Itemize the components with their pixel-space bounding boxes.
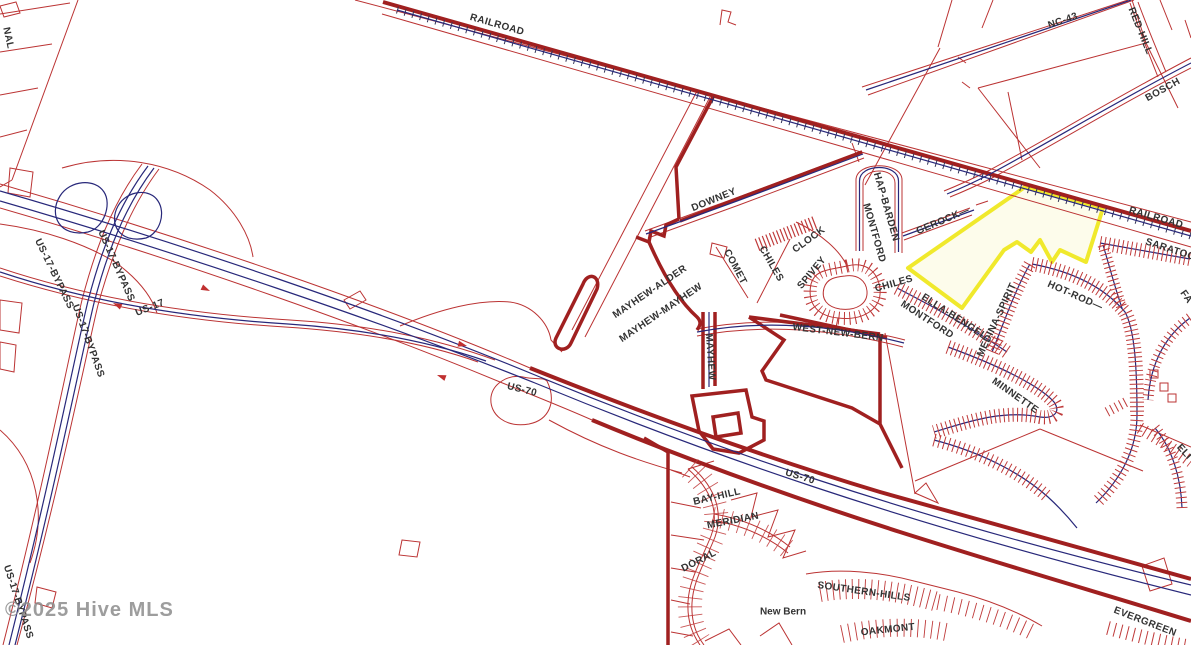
property-boundaries-segment: [644, 438, 668, 645]
watermark: ©2025 Hive MLS: [5, 599, 174, 622]
map-label-minnette: MINNETTE: [990, 376, 1041, 416]
parcel-lines-segment: [0, 430, 38, 563]
parcel-lines-segment: [705, 623, 792, 645]
townhouse-lot-rows-segment: [934, 440, 1048, 497]
map-label-evergreen: EVERGREEN: [1112, 605, 1178, 639]
parcel-lines-segment: [400, 301, 562, 352]
map-label-west-new-bern: WEST-NEW-BERN: [792, 322, 884, 344]
map-label-hot-rod: HOT-ROD—: [1046, 279, 1105, 313]
ramp-arrows-segment: [201, 284, 212, 293]
townhouse-lot-rows-segment: [1107, 402, 1126, 412]
property-boundaries-segment: [636, 219, 679, 242]
parcel-lines-segment: [958, 57, 970, 88]
road-centerlines-segment: [947, 63, 1191, 194]
property-boundaries-segment: [555, 276, 598, 349]
map-label-medina-spirit: MEDINA-SPIRIT: [975, 281, 1019, 358]
map-label-fa: FA: [1178, 288, 1191, 305]
parcel-lines-segment: [62, 160, 253, 257]
map-label-comet: COMET: [721, 248, 749, 287]
us-17-bypass-centerlines: [9, 166, 154, 645]
parcel-lines-segment: [720, 10, 736, 25]
map-canvas[interactable]: RAILROADRAILROADNC-43RED-HILLBOSCHDOWNEY…: [0, 0, 1191, 645]
map-label-chiles: CHILES: [874, 273, 915, 294]
parcel-lines-segment: [671, 461, 714, 636]
townhouse-lot-rows-segment: [938, 602, 1032, 632]
road-centerlines: [0, 0, 1191, 645]
map-label-oakmont: OAKMONT: [860, 622, 915, 639]
map-label-nal: NAL: [0, 26, 15, 50]
ramp-arrows-segment: [436, 372, 447, 381]
map-label-doral: DORAL: [680, 548, 718, 575]
townhouse-lot-rows-segment: [1096, 415, 1137, 503]
map-label-us-17-bypass: US-17-BYPASS: [70, 303, 107, 379]
map-label-new-bern: New Bern: [760, 607, 806, 618]
map-labels: RAILROADRAILROADNC-43RED-HILLBOSCHDOWNEY…: [0, 6, 1191, 640]
parcel-lines-segment: [885, 333, 1143, 503]
map-label-southern-hills: SOUTHERN-HILLS: [817, 580, 912, 604]
townhouse-lot-rows-segment: [934, 347, 1057, 432]
map-label-us-17: US-17: [134, 297, 166, 319]
parcel-lines-segment: [0, 2, 20, 17]
map-label-mayhew: MAYHEW: [703, 333, 717, 381]
road-centerlines-segment: [397, 10, 1191, 236]
map-label-chiles: CHILES: [756, 244, 785, 283]
parcel-lines-segment: [806, 571, 1042, 626]
townhouse-lot-rows-segment: [810, 265, 880, 319]
map-label-red-hill: RED-HILL: [1126, 6, 1155, 56]
railroad-line: [383, 2, 1191, 231]
nc-43-road: [862, 0, 1134, 95]
map-label-nc-43: NC-43: [1047, 11, 1080, 31]
townhouse-lot-rows-segment: [1148, 318, 1190, 400]
cloverleaf-loops: [55, 183, 161, 239]
map-label-us-17-bypass: US-17-BYPASS: [32, 237, 76, 311]
ramp-arrows: [112, 284, 468, 380]
road-centerlines-segment: [866, 0, 1131, 90]
map-label-us-70: US-70: [506, 381, 538, 399]
map-label-eli: ELI: [1174, 442, 1191, 462]
parcel-lines-segment: [0, 300, 22, 372]
parcel-lines-segment: [399, 540, 420, 557]
mls-map-page: RAILROADRAILROADNC-43RED-HILLBOSCHDOWNEY…: [0, 0, 1191, 645]
us-70-highway-edges: [530, 368, 1191, 621]
property-boundaries-segment: [680, 152, 862, 221]
map-label-railroad: RAILROAD: [1128, 205, 1185, 231]
